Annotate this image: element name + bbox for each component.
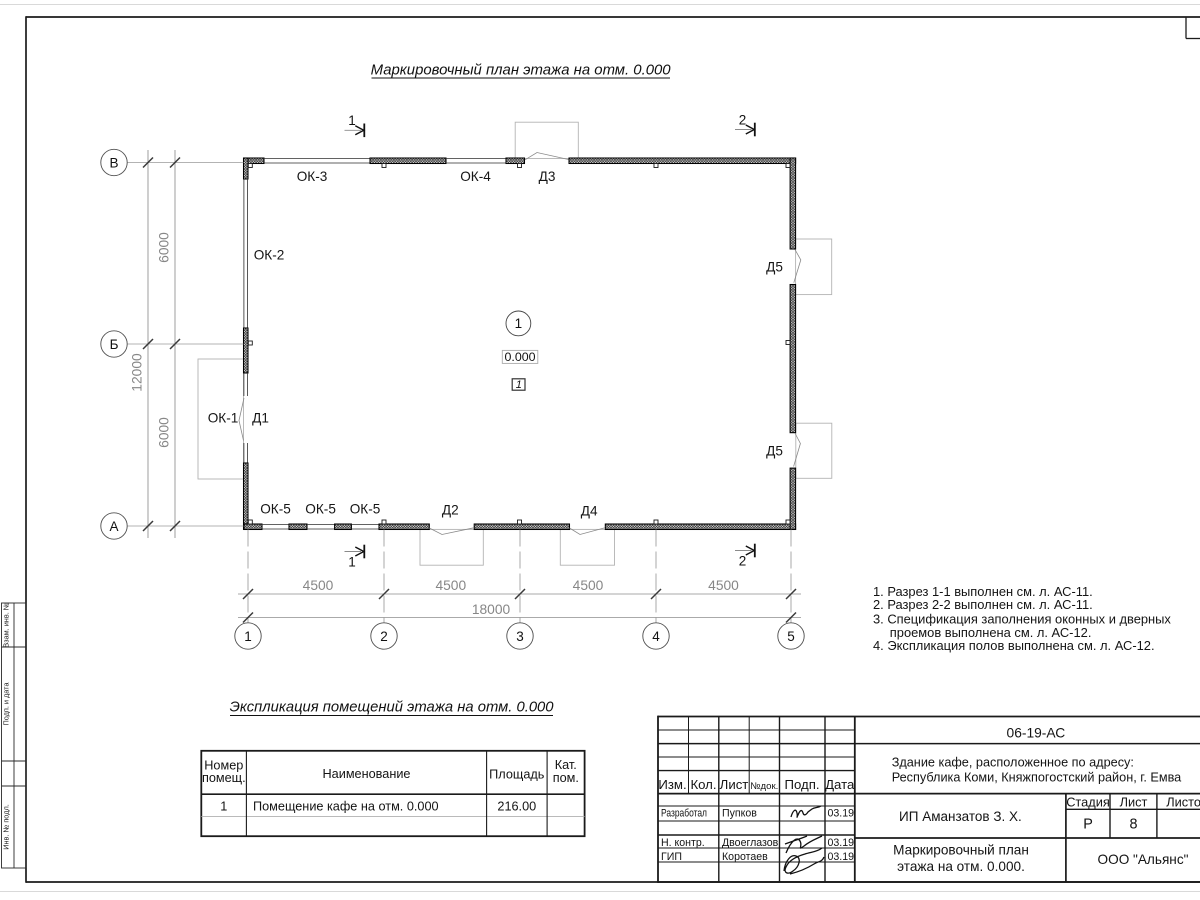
svg-text:2: 2 bbox=[380, 629, 388, 644]
svg-text:Р: Р bbox=[1083, 817, 1093, 833]
svg-text:0.000: 0.000 bbox=[504, 350, 535, 364]
svg-text:Кат.: Кат. bbox=[555, 758, 577, 772]
svg-text:этажа на отм. 0.000.: этажа на отм. 0.000. bbox=[897, 859, 1025, 874]
svg-text:Листов: Листов bbox=[1166, 795, 1200, 810]
svg-text:6000: 6000 bbox=[157, 417, 172, 448]
svg-text:Изм.: Изм. bbox=[658, 777, 686, 792]
svg-text:Д2: Д2 bbox=[442, 503, 459, 518]
svg-text:Б: Б bbox=[110, 337, 119, 352]
svg-text:1: 1 bbox=[220, 800, 227, 814]
svg-text:2: 2 bbox=[739, 553, 747, 568]
svg-text:Наименование: Наименование bbox=[323, 767, 411, 781]
svg-text:4500: 4500 bbox=[303, 578, 334, 593]
svg-text:Маркировочный план этажа на от: Маркировочный план этажа на отм. 0.000 bbox=[371, 63, 672, 79]
svg-text:4500: 4500 bbox=[435, 578, 466, 593]
svg-text:1: 1 bbox=[348, 554, 356, 569]
svg-text:ОК-5: ОК-5 bbox=[350, 502, 381, 517]
svg-text:ОК-5: ОК-5 bbox=[260, 502, 291, 517]
svg-text:Республика Коми, Княжпогостски: Республика Коми, Княжпогостский район, г… bbox=[892, 771, 1182, 785]
svg-text:ОК-3: ОК-3 bbox=[297, 169, 328, 184]
svg-text:Д5: Д5 bbox=[766, 260, 783, 275]
svg-text:ОК-5: ОК-5 bbox=[305, 502, 336, 517]
svg-text:Подп. и дата: Подп. и дата bbox=[2, 682, 11, 726]
svg-text:2: 2 bbox=[739, 112, 747, 127]
svg-text:3: 3 bbox=[516, 629, 524, 644]
svg-text:Д3: Д3 bbox=[539, 169, 556, 184]
svg-text:Кол.: Кол. bbox=[690, 777, 716, 792]
svg-text:1: 1 bbox=[244, 629, 252, 644]
svg-text:1: 1 bbox=[516, 379, 522, 391]
svg-text:4. Экспликация полов выполнена: 4. Экспликация полов выполнена см. л. АС… bbox=[873, 638, 1155, 653]
svg-text:ОК-2: ОК-2 bbox=[254, 248, 285, 263]
svg-text:Лист: Лист bbox=[720, 777, 749, 792]
svg-text:4500: 4500 bbox=[708, 578, 739, 593]
svg-text:помещ.: помещ. bbox=[202, 771, 246, 785]
svg-text:№док.: №док. bbox=[750, 781, 778, 792]
svg-text:18000: 18000 bbox=[472, 602, 511, 617]
svg-text:Помещение кафе на отм. 0.000: Помещение кафе на отм. 0.000 bbox=[253, 800, 439, 814]
svg-text:Подп.: Подп. bbox=[784, 777, 819, 792]
svg-text:Пупков: Пупков bbox=[722, 808, 757, 820]
svg-text:03.19: 03.19 bbox=[828, 851, 855, 863]
svg-text:Экспликация помещений этажа на: Экспликация помещений этажа на отм. 0.00… bbox=[230, 700, 555, 716]
svg-text:216.00: 216.00 bbox=[497, 800, 536, 814]
svg-text:Площадь: Площадь bbox=[489, 768, 545, 782]
svg-text:ГИП: ГИП bbox=[661, 851, 682, 863]
svg-text:8: 8 bbox=[1129, 817, 1137, 833]
svg-text:2. Разрез 2-2 выполнен см. л.: 2. Разрез 2-2 выполнен см. л. АС-11. bbox=[873, 597, 1093, 612]
svg-text:ОК-4: ОК-4 bbox=[460, 169, 491, 184]
svg-text:Д4: Д4 bbox=[581, 504, 598, 519]
svg-text:Лист: Лист bbox=[1120, 795, 1148, 810]
svg-text:ИП Аманзатов З. Х.: ИП Аманзатов З. Х. bbox=[899, 809, 1022, 824]
svg-text:ООО "Альянс": ООО "Альянс" bbox=[1098, 852, 1189, 867]
svg-text:4: 4 bbox=[652, 629, 660, 644]
svg-text:Двоеглазов: Двоеглазов bbox=[722, 837, 779, 849]
svg-text:Коротаев: Коротаев bbox=[722, 851, 768, 863]
svg-text:Н. контр.: Н. контр. bbox=[661, 837, 705, 849]
svg-text:Стадия: Стадия bbox=[1066, 795, 1110, 810]
svg-text:ОК-1: ОК-1 bbox=[208, 411, 239, 426]
svg-text:А: А bbox=[109, 519, 118, 534]
svg-text:1: 1 bbox=[348, 113, 356, 128]
svg-text:пом.: пом. bbox=[553, 771, 579, 785]
svg-text:Д1: Д1 bbox=[252, 411, 269, 426]
svg-text:В: В bbox=[109, 156, 118, 171]
svg-text:Маркировочный план: Маркировочный план bbox=[893, 843, 1029, 858]
svg-text:4500: 4500 bbox=[573, 578, 604, 593]
svg-text:1: 1 bbox=[515, 316, 523, 331]
svg-text:03.19: 03.19 bbox=[828, 808, 855, 820]
svg-text:6000: 6000 bbox=[157, 232, 172, 263]
svg-text:Разработал: Разработал bbox=[661, 808, 707, 820]
svg-text:Д5: Д5 bbox=[766, 444, 783, 459]
svg-text:Дата: Дата bbox=[825, 777, 855, 792]
svg-text:Инв. № подл.: Инв. № подл. bbox=[2, 804, 11, 849]
svg-text:Здание кафе, расположенное по: Здание кафе, расположенное по адресу: bbox=[892, 756, 1134, 770]
svg-text:06-19-АС: 06-19-АС bbox=[1007, 726, 1066, 741]
svg-text:Взам. инв. №: Взам. инв. № bbox=[2, 602, 11, 647]
svg-text:12000: 12000 bbox=[130, 353, 145, 392]
svg-text:5: 5 bbox=[787, 629, 795, 644]
svg-text:03.19: 03.19 bbox=[828, 837, 855, 849]
